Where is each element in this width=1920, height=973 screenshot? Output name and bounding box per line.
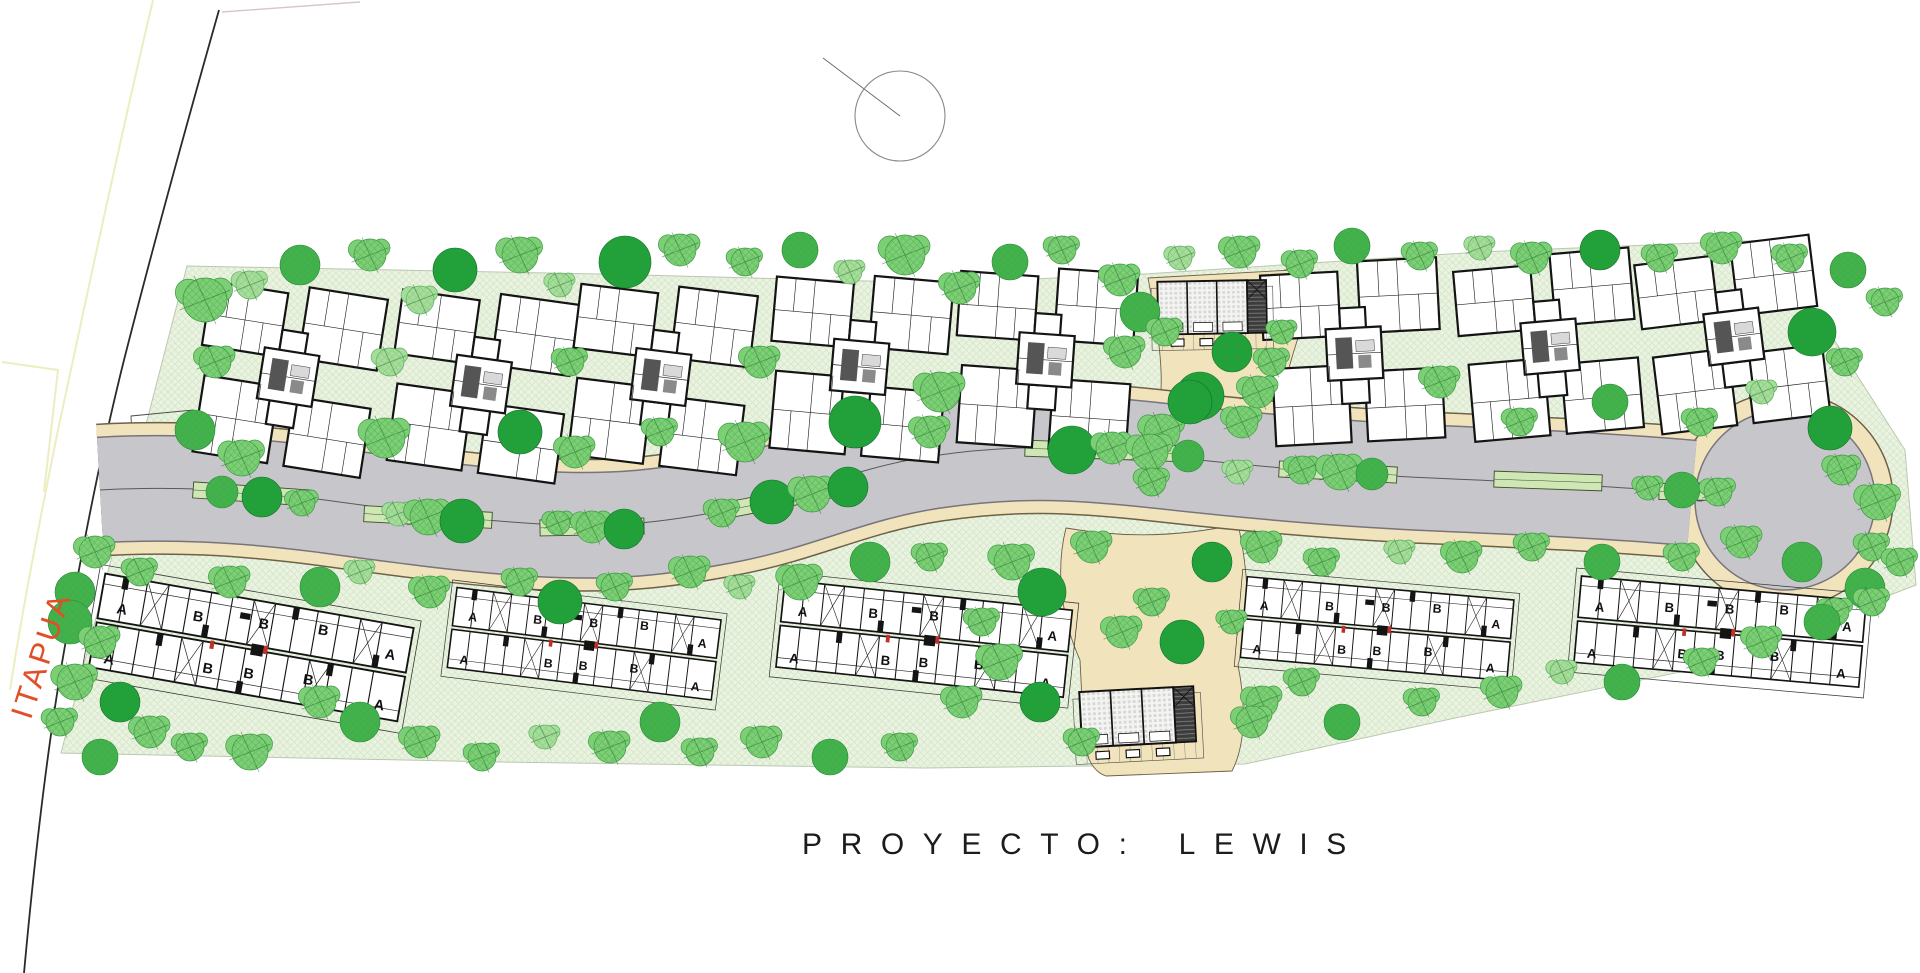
tree [604,509,644,549]
unit-type-label: B [929,608,940,624]
unit-type-label: A [1586,646,1597,662]
unit-type-label: B [629,661,640,676]
tree [1356,458,1388,490]
unit-type-label: B [868,605,879,621]
parcel-boundary-line [222,2,360,12]
unit-type-label: B [532,612,543,627]
tree [82,739,118,775]
reference-bubble-leader [823,58,900,116]
tree [1048,426,1096,474]
tree [1164,245,1195,271]
tree [1830,252,1866,288]
tree [100,682,140,722]
tree [340,702,380,742]
tree [171,732,207,763]
unit-type-label: A [1252,642,1262,657]
tree [878,233,930,277]
unit-type-label: B [1325,599,1335,614]
tree [496,235,543,275]
unit-type-label: B [1372,644,1382,659]
tree [300,567,340,607]
tree [498,410,542,454]
unit-type-label: B [588,616,599,631]
unit-type-label: B [1381,600,1391,615]
unit-type-label: B [1423,645,1433,660]
tree [1580,230,1620,270]
tree [1160,620,1204,664]
road-median [1494,471,1602,491]
tree [1584,544,1620,580]
tree [1212,332,1252,372]
unit-type-label: B [880,653,891,669]
unit-type-label: A [1594,599,1605,615]
tree [463,742,499,773]
unit-type-label: A [1047,628,1059,644]
tree [1218,234,1260,269]
unit-type-label: B [1432,601,1442,616]
tree [992,244,1028,280]
unit-type-label: A [1836,666,1847,682]
unit-type-label: A [788,651,800,667]
tree [1172,440,1204,472]
tree [1192,542,1232,582]
tree [1604,664,1640,700]
tree [440,499,484,543]
tree [829,396,881,448]
tree [726,247,762,278]
project-title: PROYECTO:LEWIS [802,828,1365,862]
tree [658,232,700,267]
unit-type-label: A [468,610,479,625]
unit-type-label: B [1337,642,1347,657]
site-plan-sheet: ABBBAABBBAABBBAABBBAABBBAABBBAABBBAABBBA… [0,0,1920,973]
tree [1018,568,1066,616]
unit-type-label: A [690,679,701,694]
tree [433,248,477,292]
tree [1168,380,1212,424]
tree [1324,704,1360,740]
unit-type-label: A [459,653,470,668]
tree [1866,287,1902,318]
tree [782,232,818,268]
tree [1043,235,1079,266]
unit-type-label: B [1779,602,1790,618]
tree [348,237,390,272]
tree [280,245,320,285]
unit-type-label: A [1259,599,1269,614]
unit-type-label: A [697,636,708,651]
tree [850,542,890,582]
tree [1020,682,1060,722]
unit-type-label: B [1724,601,1735,617]
unit-type-label: B [543,656,554,671]
tree [1664,472,1700,508]
unit-type-label: A [1485,661,1495,676]
tree [538,580,582,624]
unit-type-label: B [918,655,929,671]
tree [828,467,868,507]
tree [640,702,680,742]
tree [1808,406,1852,450]
unit-type-label: A [797,604,809,620]
tree [1804,604,1840,640]
tree [1592,384,1628,420]
tree [175,410,215,450]
tree [242,477,282,517]
project-title-name: LEWIS [1179,828,1365,861]
tree [1788,308,1836,356]
tree [812,739,848,775]
unit-type-label: A [1491,617,1501,632]
tree [1782,542,1822,582]
unit-type-label: B [639,618,650,633]
tree [1334,228,1370,264]
unit-type-label: B [578,659,589,674]
tree [206,476,238,508]
tree [226,732,273,772]
tree [599,236,651,288]
tree [750,480,794,524]
project-title-prefix: PROYECTO: [802,828,1146,861]
unit-type-label: B [1664,600,1675,616]
